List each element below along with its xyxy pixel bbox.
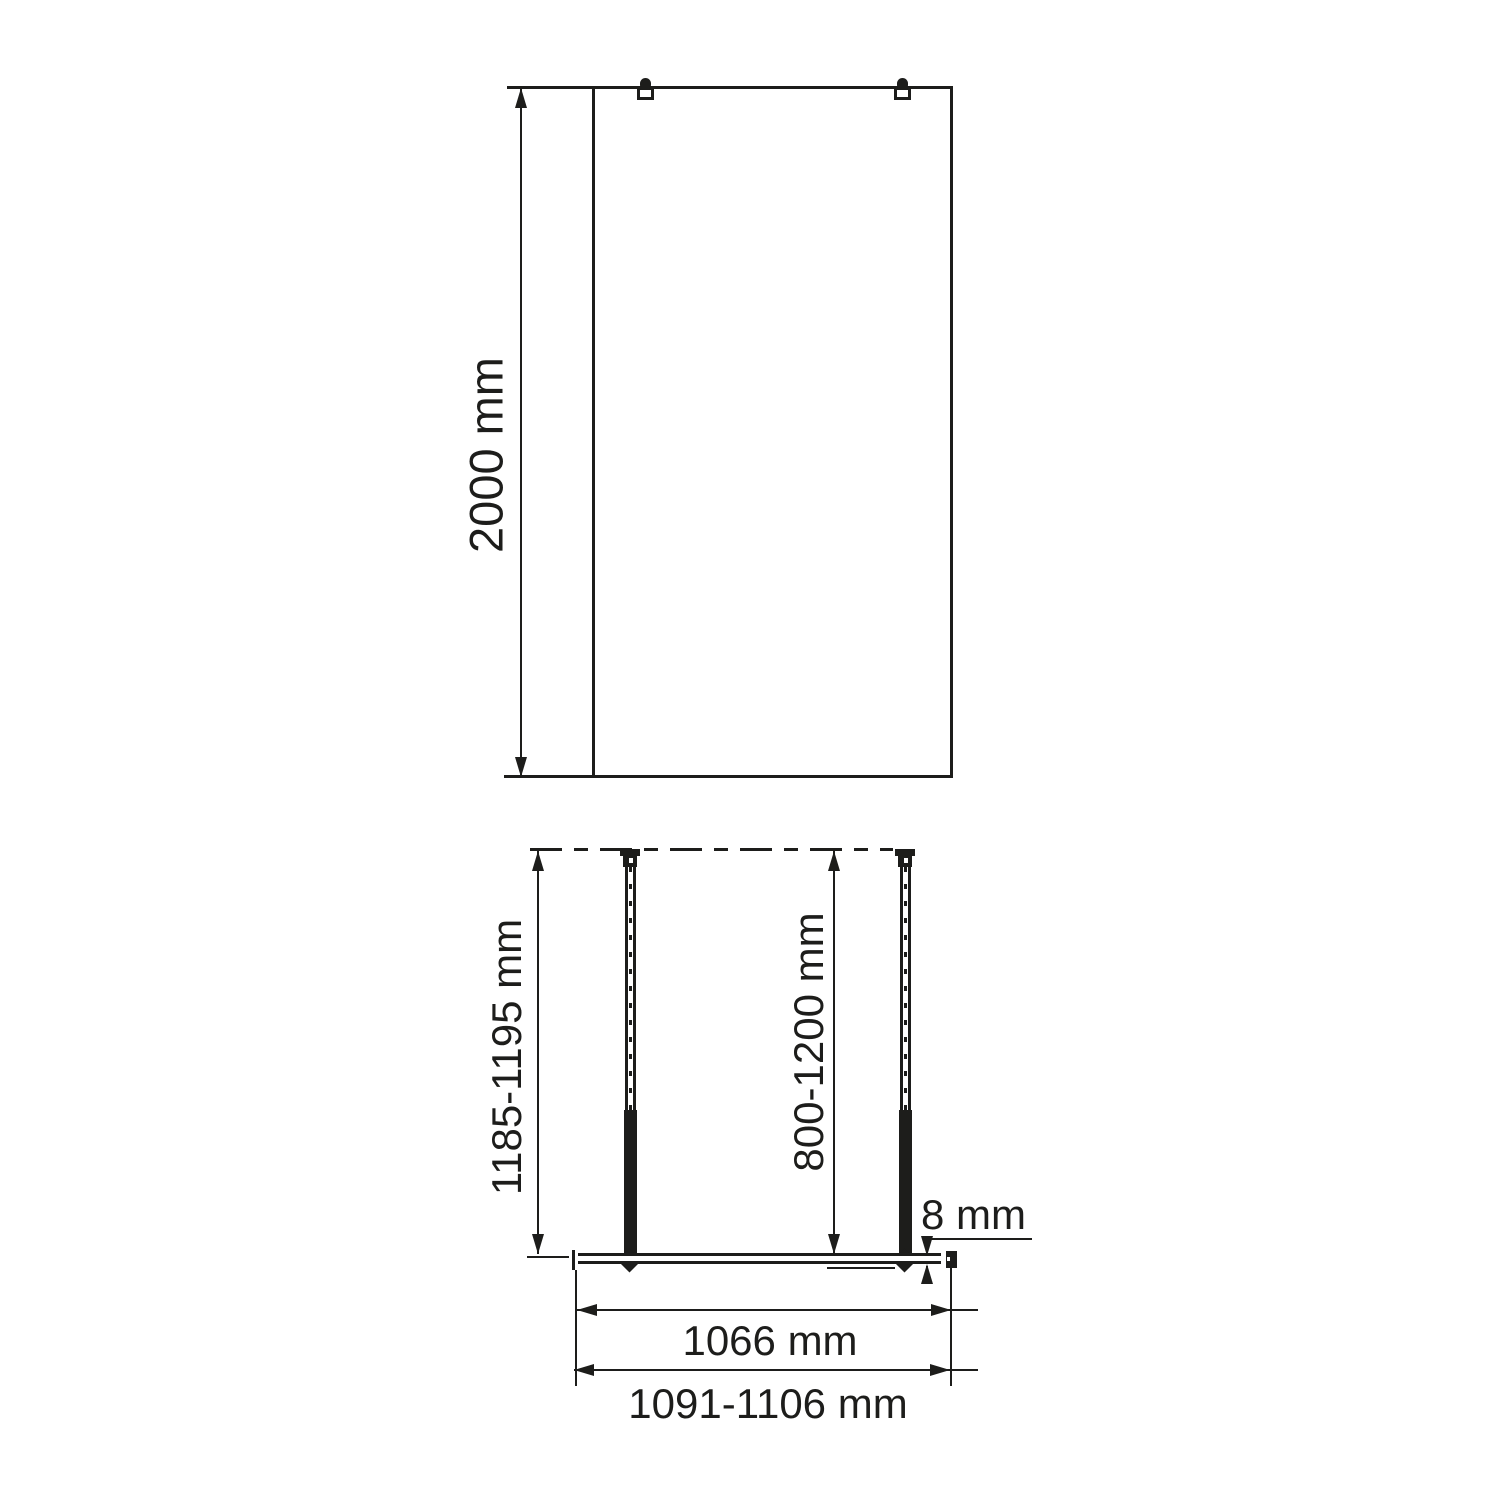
extension-line-right bbox=[950, 1266, 952, 1386]
glass-panel-front-outline bbox=[592, 86, 953, 778]
arrowhead-right-icon bbox=[931, 1304, 951, 1316]
support-tube bbox=[625, 867, 636, 1110]
support-rod bbox=[899, 1110, 912, 1255]
inner-width-dimension-line bbox=[577, 1309, 978, 1311]
support-cap-notch bbox=[629, 858, 633, 863]
arrowhead-left-icon bbox=[577, 1304, 597, 1316]
overall-width-dimension-line bbox=[574, 1369, 978, 1371]
glass-panel-plan bbox=[578, 1253, 941, 1264]
arrowhead-down-icon bbox=[921, 1236, 933, 1256]
extension-tick bbox=[827, 1267, 895, 1269]
bracket-knob-icon bbox=[640, 78, 651, 87]
wall-profile-end-notch bbox=[947, 1257, 950, 1261]
arrowhead-up-icon bbox=[532, 851, 544, 871]
support-cap-flange bbox=[620, 849, 640, 856]
arrowhead-left-icon bbox=[574, 1364, 594, 1376]
overall-width-dimension-label: 1091-1106 mm bbox=[628, 1380, 907, 1428]
inner-width-dimension-label: 1066 mm bbox=[682, 1317, 857, 1365]
glass-thickness-label: 8 mm bbox=[921, 1191, 1026, 1239]
arrowhead-down-icon bbox=[532, 1234, 544, 1254]
arrowhead-up-icon bbox=[515, 88, 527, 108]
right-support-dimension-label: 800-1200 mm bbox=[785, 912, 833, 1171]
glass-left-end-tick bbox=[572, 1250, 575, 1270]
arrowhead-up-icon bbox=[921, 1264, 933, 1284]
bracket-body-icon bbox=[637, 87, 654, 100]
dimension-line bbox=[833, 850, 835, 1254]
arrowhead-down-icon bbox=[828, 1234, 840, 1254]
arrowhead-right-icon bbox=[930, 1364, 950, 1376]
extension-tick bbox=[527, 1256, 569, 1258]
bracket-body-icon bbox=[894, 87, 911, 100]
dimension-line bbox=[537, 850, 539, 1254]
arrowhead-down-icon bbox=[515, 757, 527, 777]
support-cap-notch bbox=[904, 858, 908, 863]
support-rod bbox=[624, 1110, 637, 1255]
arrowhead-up-icon bbox=[828, 851, 840, 871]
left-support-dimension-label: 1185-1195 mm bbox=[483, 919, 531, 1195]
height-dimension-line bbox=[520, 87, 522, 777]
height-dimension-label: 2000 mm bbox=[459, 357, 514, 553]
technical-drawing-canvas: 2000 mm bbox=[0, 0, 1500, 1500]
support-tube bbox=[900, 867, 911, 1110]
support-cap-flange bbox=[895, 849, 915, 856]
bracket-knob-icon bbox=[897, 78, 908, 87]
